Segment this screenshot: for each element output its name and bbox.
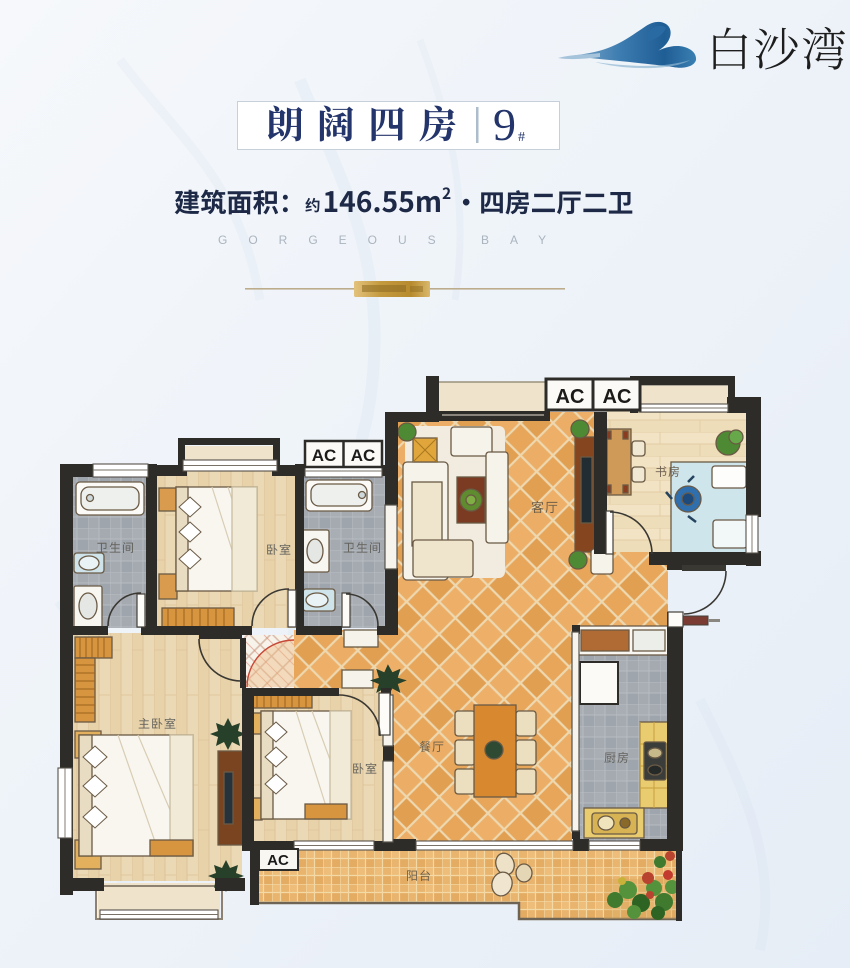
svg-text:AC: AC — [603, 386, 632, 408]
svg-text:9: 9 — [493, 99, 516, 150]
svg-text:AC: AC — [312, 446, 337, 465]
svg-text:AC: AC — [267, 852, 289, 869]
svg-text:AC: AC — [351, 446, 376, 465]
svg-text:#: # — [518, 130, 525, 145]
svg-text:AC: AC — [556, 386, 585, 408]
svg-text:GORGEOUS BAY: GORGEOUS BAY — [218, 233, 567, 247]
